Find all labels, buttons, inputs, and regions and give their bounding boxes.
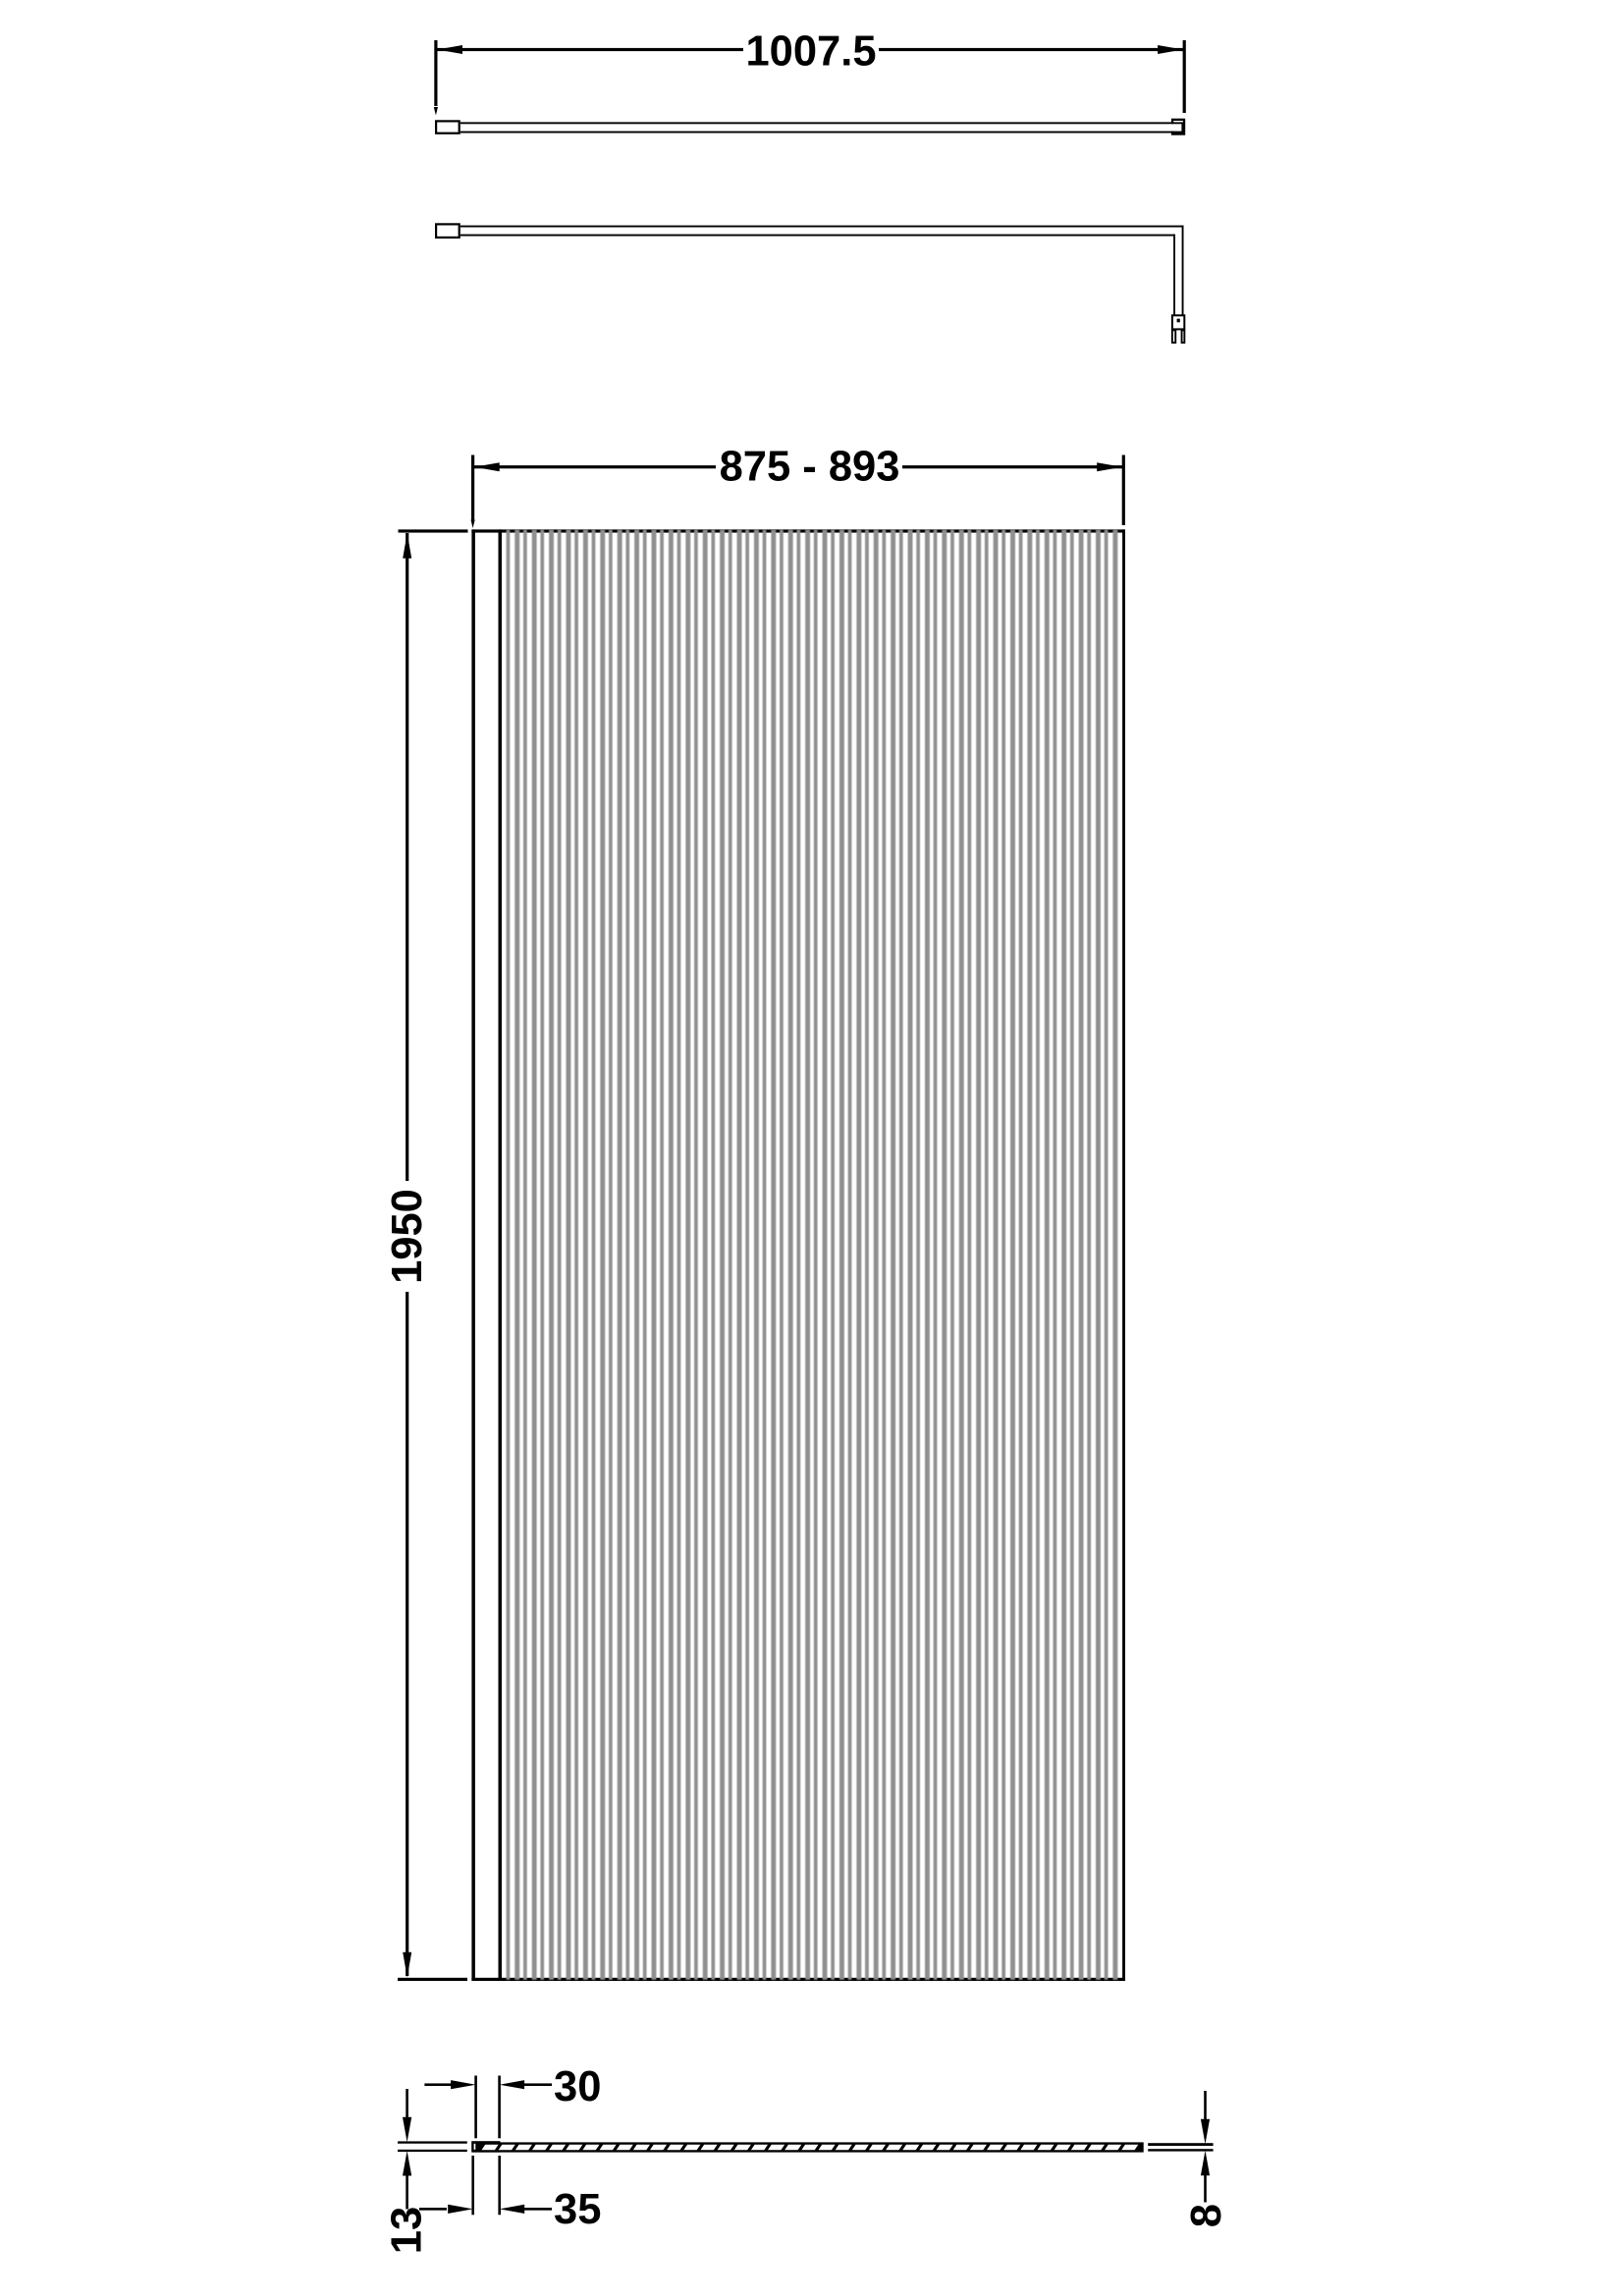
svg-text:35: 35: [554, 2186, 601, 2233]
svg-text:1007.5: 1007.5: [745, 27, 876, 75]
svg-text:1950: 1950: [384, 1189, 431, 1284]
svg-text:13: 13: [384, 2207, 431, 2254]
svg-text:30: 30: [554, 2063, 601, 2110]
svg-text:875 - 893: 875 - 893: [720, 444, 900, 491]
svg-text:8: 8: [1183, 2204, 1230, 2227]
